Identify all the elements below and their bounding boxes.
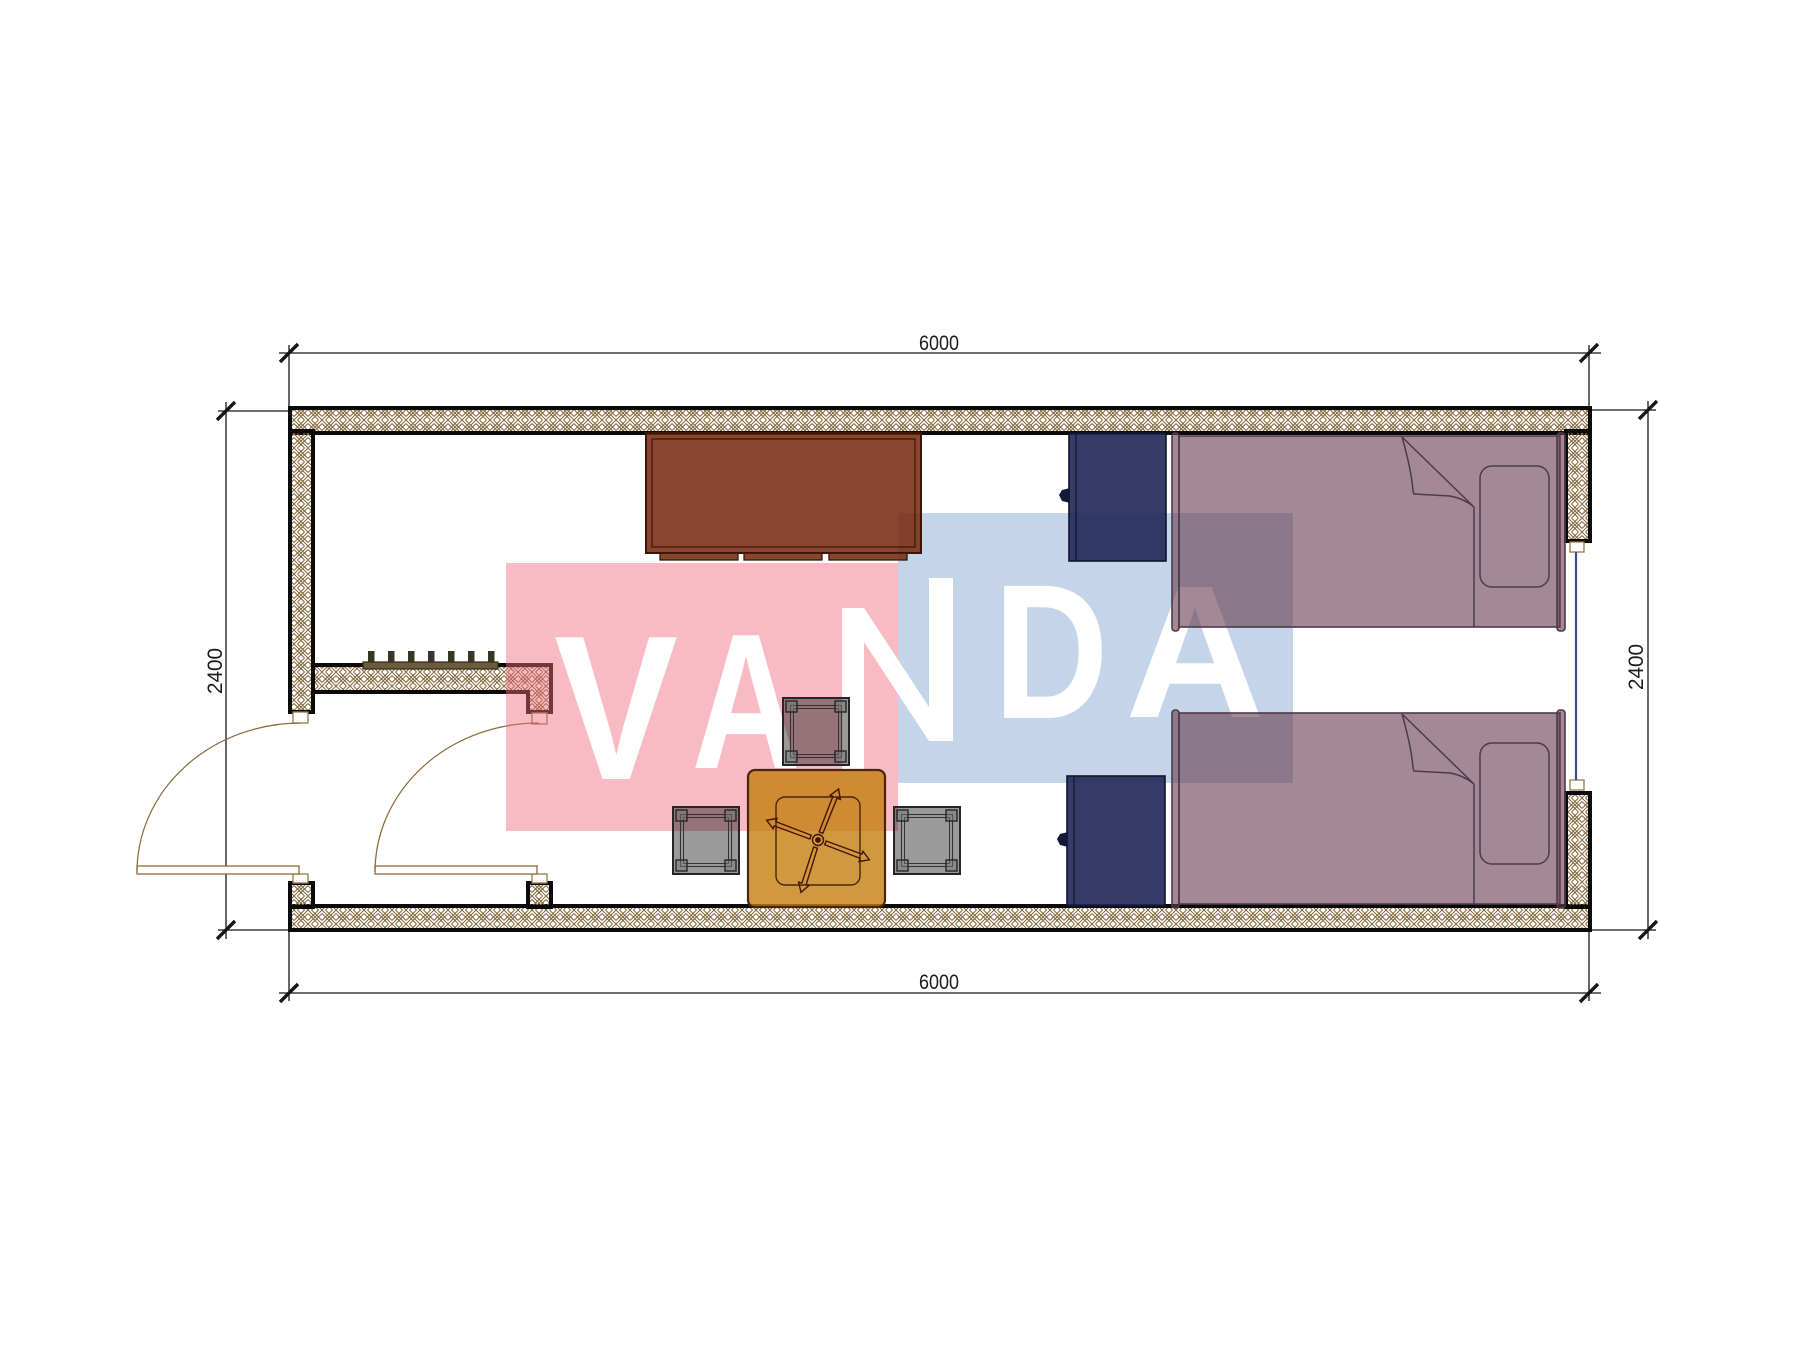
svg-text:D: D (994, 544, 1109, 759)
svg-text:2400: 2400 (1625, 644, 1648, 690)
svg-text:6000: 6000 (919, 971, 959, 994)
svg-text:6000: 6000 (919, 332, 959, 355)
svg-text:2400: 2400 (204, 648, 227, 694)
svg-text:V: V (554, 593, 678, 823)
